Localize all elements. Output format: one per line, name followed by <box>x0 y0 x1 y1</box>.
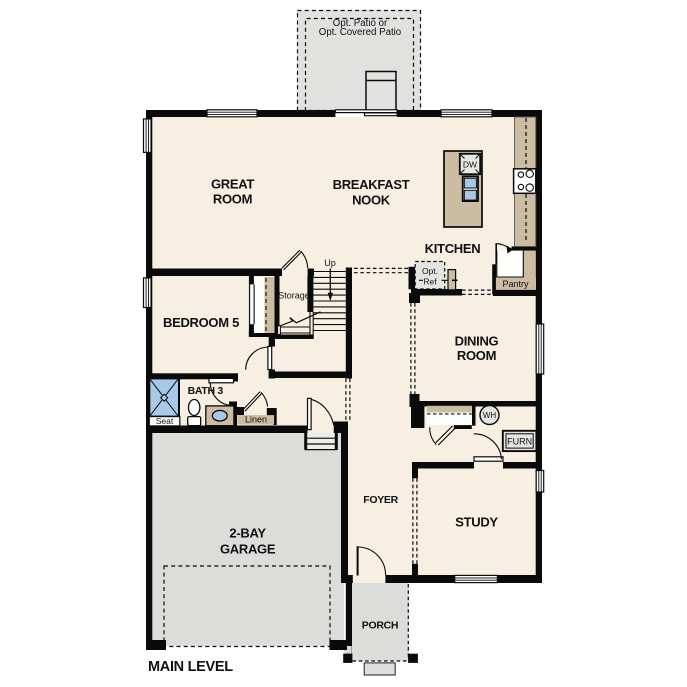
svg-text:Up: Up <box>324 258 336 268</box>
svg-text:Opt.: Opt. <box>422 266 438 276</box>
svg-text:Seat: Seat <box>156 416 174 426</box>
svg-text:DW: DW <box>463 159 477 169</box>
svg-text:Pantry: Pantry <box>502 279 529 289</box>
svg-text:Storage: Storage <box>278 291 310 301</box>
svg-text:GREAT: GREAT <box>211 176 254 191</box>
svg-text:Opt. Covered Patio: Opt. Covered Patio <box>319 27 401 38</box>
svg-text:WH: WH <box>483 411 497 420</box>
svg-text:FURN: FURN <box>507 437 532 447</box>
svg-text:STUDY: STUDY <box>455 514 498 529</box>
svg-text:Linen: Linen <box>245 415 267 425</box>
svg-text:ROOM: ROOM <box>213 192 252 207</box>
svg-text:BREAKFAST: BREAKFAST <box>333 177 410 192</box>
svg-text:KITCHEN: KITCHEN <box>425 241 481 256</box>
svg-text:BATH 3: BATH 3 <box>188 385 224 397</box>
svg-text:GARAGE: GARAGE <box>220 542 276 557</box>
svg-text:NOOK: NOOK <box>352 193 391 208</box>
svg-text:2-BAY: 2-BAY <box>229 526 266 541</box>
svg-text:DINING: DINING <box>455 333 499 348</box>
svg-text:FOYER: FOYER <box>363 494 398 506</box>
svg-text:Ref: Ref <box>423 277 437 287</box>
svg-text:ROOM: ROOM <box>457 348 496 363</box>
svg-text:MAIN LEVEL: MAIN LEVEL <box>148 659 233 675</box>
svg-text:BEDROOM 5: BEDROOM 5 <box>163 315 239 330</box>
svg-text:PORCH: PORCH <box>362 620 398 632</box>
